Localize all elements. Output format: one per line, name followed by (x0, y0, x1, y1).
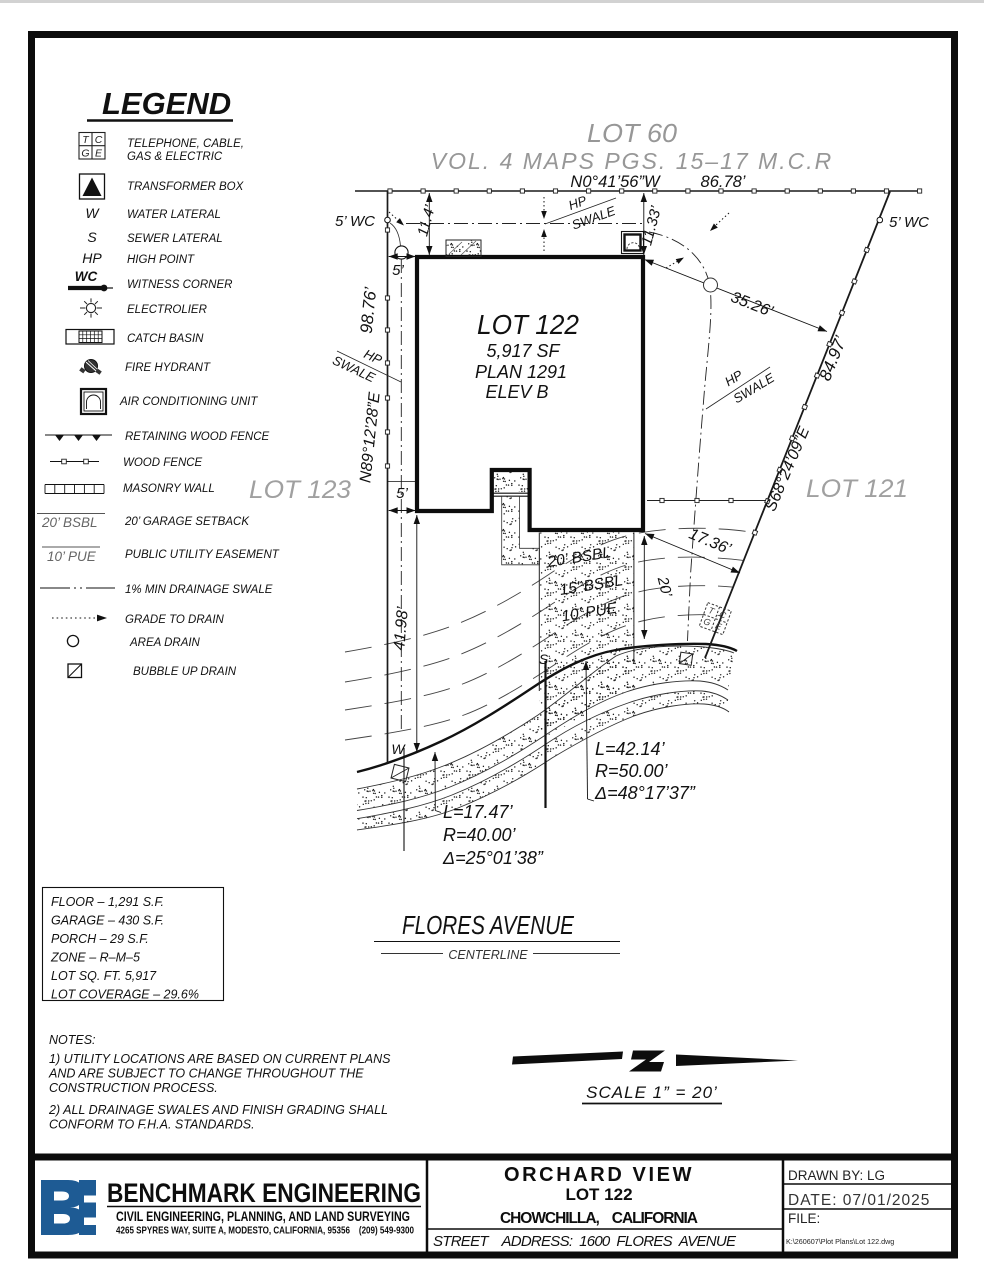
svg-text:4265 SPYRES WAY, SUITE A, MODE: 4265 SPYRES WAY, SUITE A, MODESTO, CALIF… (116, 1226, 414, 1237)
svg-text:DATE: 07/01/2025: DATE: 07/01/2025 (788, 1192, 930, 1209)
svg-text:CIVIL ENGINEERING, PLANNING, A: CIVIL ENGINEERING, PLANNING, AND LAND SU… (116, 1209, 410, 1224)
svg-text:S: S (539, 651, 549, 667)
svg-text:5’: 5’ (396, 485, 408, 502)
svg-text:LOT 60: LOT 60 (587, 118, 678, 148)
svg-text:R=40.00’: R=40.00’ (443, 825, 517, 845)
svg-text:LOT SQ. FT. 5,917: LOT SQ. FT. 5,917 (51, 969, 157, 983)
svg-text:AND ARE SUBJECT TO CHANGE: AND ARE SUBJECT TO CHANGE THROUGHOUT THE (48, 1067, 364, 1081)
svg-text:2) ALL DRAINAGE SWALES AND: 2) ALL DRAINAGE SWALES AND FINISH GRADIN… (48, 1103, 388, 1117)
svg-text:LOT 123: LOT 123 (249, 476, 351, 504)
svg-text:FLOOR – 1,291 S.F.: FLOOR – 1,291 S.F. (51, 895, 164, 909)
svg-text:ELECTROLIER: ELECTROLIER (127, 304, 207, 316)
svg-text:SCALE 1” = 20’: SCALE 1” = 20’ (586, 1083, 718, 1102)
svg-text:20’ BSBL: 20’ BSBL (41, 515, 98, 530)
svg-text:PORCH – 29 S.F.: PORCH – 29 S.F. (51, 932, 149, 946)
svg-text:MASONRY WALL: MASONRY WALL (123, 483, 215, 495)
svg-text:TELEPHONE, CABLE,: TELEPHONE, CABLE, (127, 138, 244, 150)
svg-text:LOT 122: LOT 122 (565, 1185, 632, 1204)
svg-text:GARAGE – 430 S.F.: GARAGE – 430 S.F. (51, 914, 164, 928)
svg-text:86.78’: 86.78’ (701, 173, 746, 191)
svg-text:5’: 5’ (392, 262, 404, 279)
svg-text:Δ=25°01’38”: Δ=25°01’38” (442, 848, 544, 868)
svg-text:5’ WC: 5’ WC (889, 214, 929, 231)
svg-text:LEGEND: LEGEND (102, 86, 231, 121)
svg-text:R=50.00’: R=50.00’ (595, 761, 669, 781)
svg-text:BENCHMARK ENGINEERING: BENCHMARK ENGINEERING (107, 1178, 421, 1208)
svg-text:L=17.47’: L=17.47’ (443, 802, 514, 822)
svg-text:W: W (391, 741, 406, 757)
svg-text:LOT COVERAGE – 29.6%: LOT COVERAGE – 29.6% (51, 988, 199, 1002)
svg-text:20’ GARAGE SETBACK: 20’ GARAGE SETBACK (124, 516, 250, 528)
svg-text:W: W (85, 205, 100, 221)
svg-text:GRADE TO DRAIN: GRADE TO DRAIN (125, 614, 225, 626)
svg-text:SEWER LATERAL: SEWER LATERAL (127, 233, 223, 245)
svg-text:S: S (87, 229, 97, 245)
svg-text:AREA DRAIN: AREA DRAIN (129, 637, 201, 649)
svg-text:E: E (95, 148, 103, 160)
svg-text:5,917 SF: 5,917 SF (486, 341, 560, 361)
svg-text:FILE:: FILE: (788, 1211, 820, 1226)
svg-text:ELEV B: ELEV B (485, 382, 548, 402)
svg-text:N0°41’56”W: N0°41’56”W (570, 173, 661, 191)
svg-text:DRAWN BY: LG: DRAWN BY: LG (788, 1168, 885, 1183)
svg-text:1) UTILITY LOCATIONS ARE B: 1) UTILITY LOCATIONS ARE BASED ON CURREN… (49, 1052, 391, 1066)
svg-text:AIR CONDITIONING UNIT: AIR CONDITIONING UNIT (119, 396, 258, 408)
svg-text:NOTES:: NOTES: (49, 1033, 96, 1047)
svg-text:WITNESS CORNER: WITNESS CORNER (127, 279, 232, 291)
svg-text:ORCHARD VIEW: ORCHARD VIEW (504, 1164, 694, 1186)
svg-text:LOT 121: LOT 121 (806, 475, 908, 503)
svg-text:CONSTRUCTION PROCESS.: CONSTRUCTION PROCESS. (49, 1081, 218, 1095)
svg-text:PUBLIC UTILITY EASEMENT: PUBLIC UTILITY EASEMENT (125, 549, 280, 561)
svg-text:WC: WC (75, 269, 98, 284)
svg-text:BUBBLE UP DRAIN: BUBBLE UP DRAIN (133, 666, 237, 678)
svg-text:10’ PUE: 10’ PUE (47, 549, 97, 564)
svg-text:WOOD FENCE: WOOD FENCE (123, 457, 203, 469)
svg-text:CONFORM TO F.H.A. STANDARDS: CONFORM TO F.H.A. STANDARDS. (49, 1118, 255, 1132)
svg-text:Δ=48°17’37”: Δ=48°17’37” (594, 783, 696, 803)
svg-text:FLORES AVENUE: FLORES AVENUE (402, 910, 575, 940)
svg-text:HIGH POINT: HIGH POINT (127, 254, 195, 266)
svg-text:PLAN 1291: PLAN 1291 (475, 362, 567, 382)
svg-text:CENTERLINE: CENTERLINE (448, 948, 528, 962)
svg-text:ZONE – R–M–5: ZONE – R–M–5 (50, 951, 140, 965)
svg-text:STREET ADDRESS: 1600 FLOR: STREET ADDRESS: 1600 FLORES AVENUE (433, 1233, 737, 1250)
svg-text:LOT 122: LOT 122 (477, 309, 579, 340)
svg-text:FIRE HYDRANT: FIRE HYDRANT (125, 362, 211, 374)
svg-text:G: G (81, 148, 89, 160)
svg-text:GAS & ELECTRIC: GAS & ELECTRIC (127, 151, 223, 163)
svg-text:RETAINING WOOD FENCE: RETAINING WOOD FENCE (125, 431, 270, 443)
svg-text:VOL. 4 MAPS PGS. 15–17 M.: VOL. 4 MAPS PGS. 15–17 M.C.R (431, 148, 833, 174)
svg-text:K:\260607\Plot Plans\Lot 122.d: K:\260607\Plot Plans\Lot 122.dwg (786, 1237, 894, 1246)
svg-text:TRANSFORMER BOX: TRANSFORMER BOX (127, 181, 245, 193)
svg-text:C: C (95, 134, 103, 146)
svg-text:WATER LATERAL: WATER LATERAL (127, 209, 221, 221)
svg-text:5’ WC: 5’ WC (335, 213, 375, 230)
svg-text:CHOWCHILLA, CALIFORNIA: CHOWCHILLA, CALIFORNIA (500, 1210, 698, 1227)
svg-text:L=42.14’: L=42.14’ (595, 739, 666, 759)
svg-text:CATCH BASIN: CATCH BASIN (127, 333, 204, 345)
svg-text:HP: HP (82, 250, 102, 266)
svg-text:1% MIN DRAINAGE SWALE: 1% MIN DRAINAGE SWALE (125, 584, 273, 596)
